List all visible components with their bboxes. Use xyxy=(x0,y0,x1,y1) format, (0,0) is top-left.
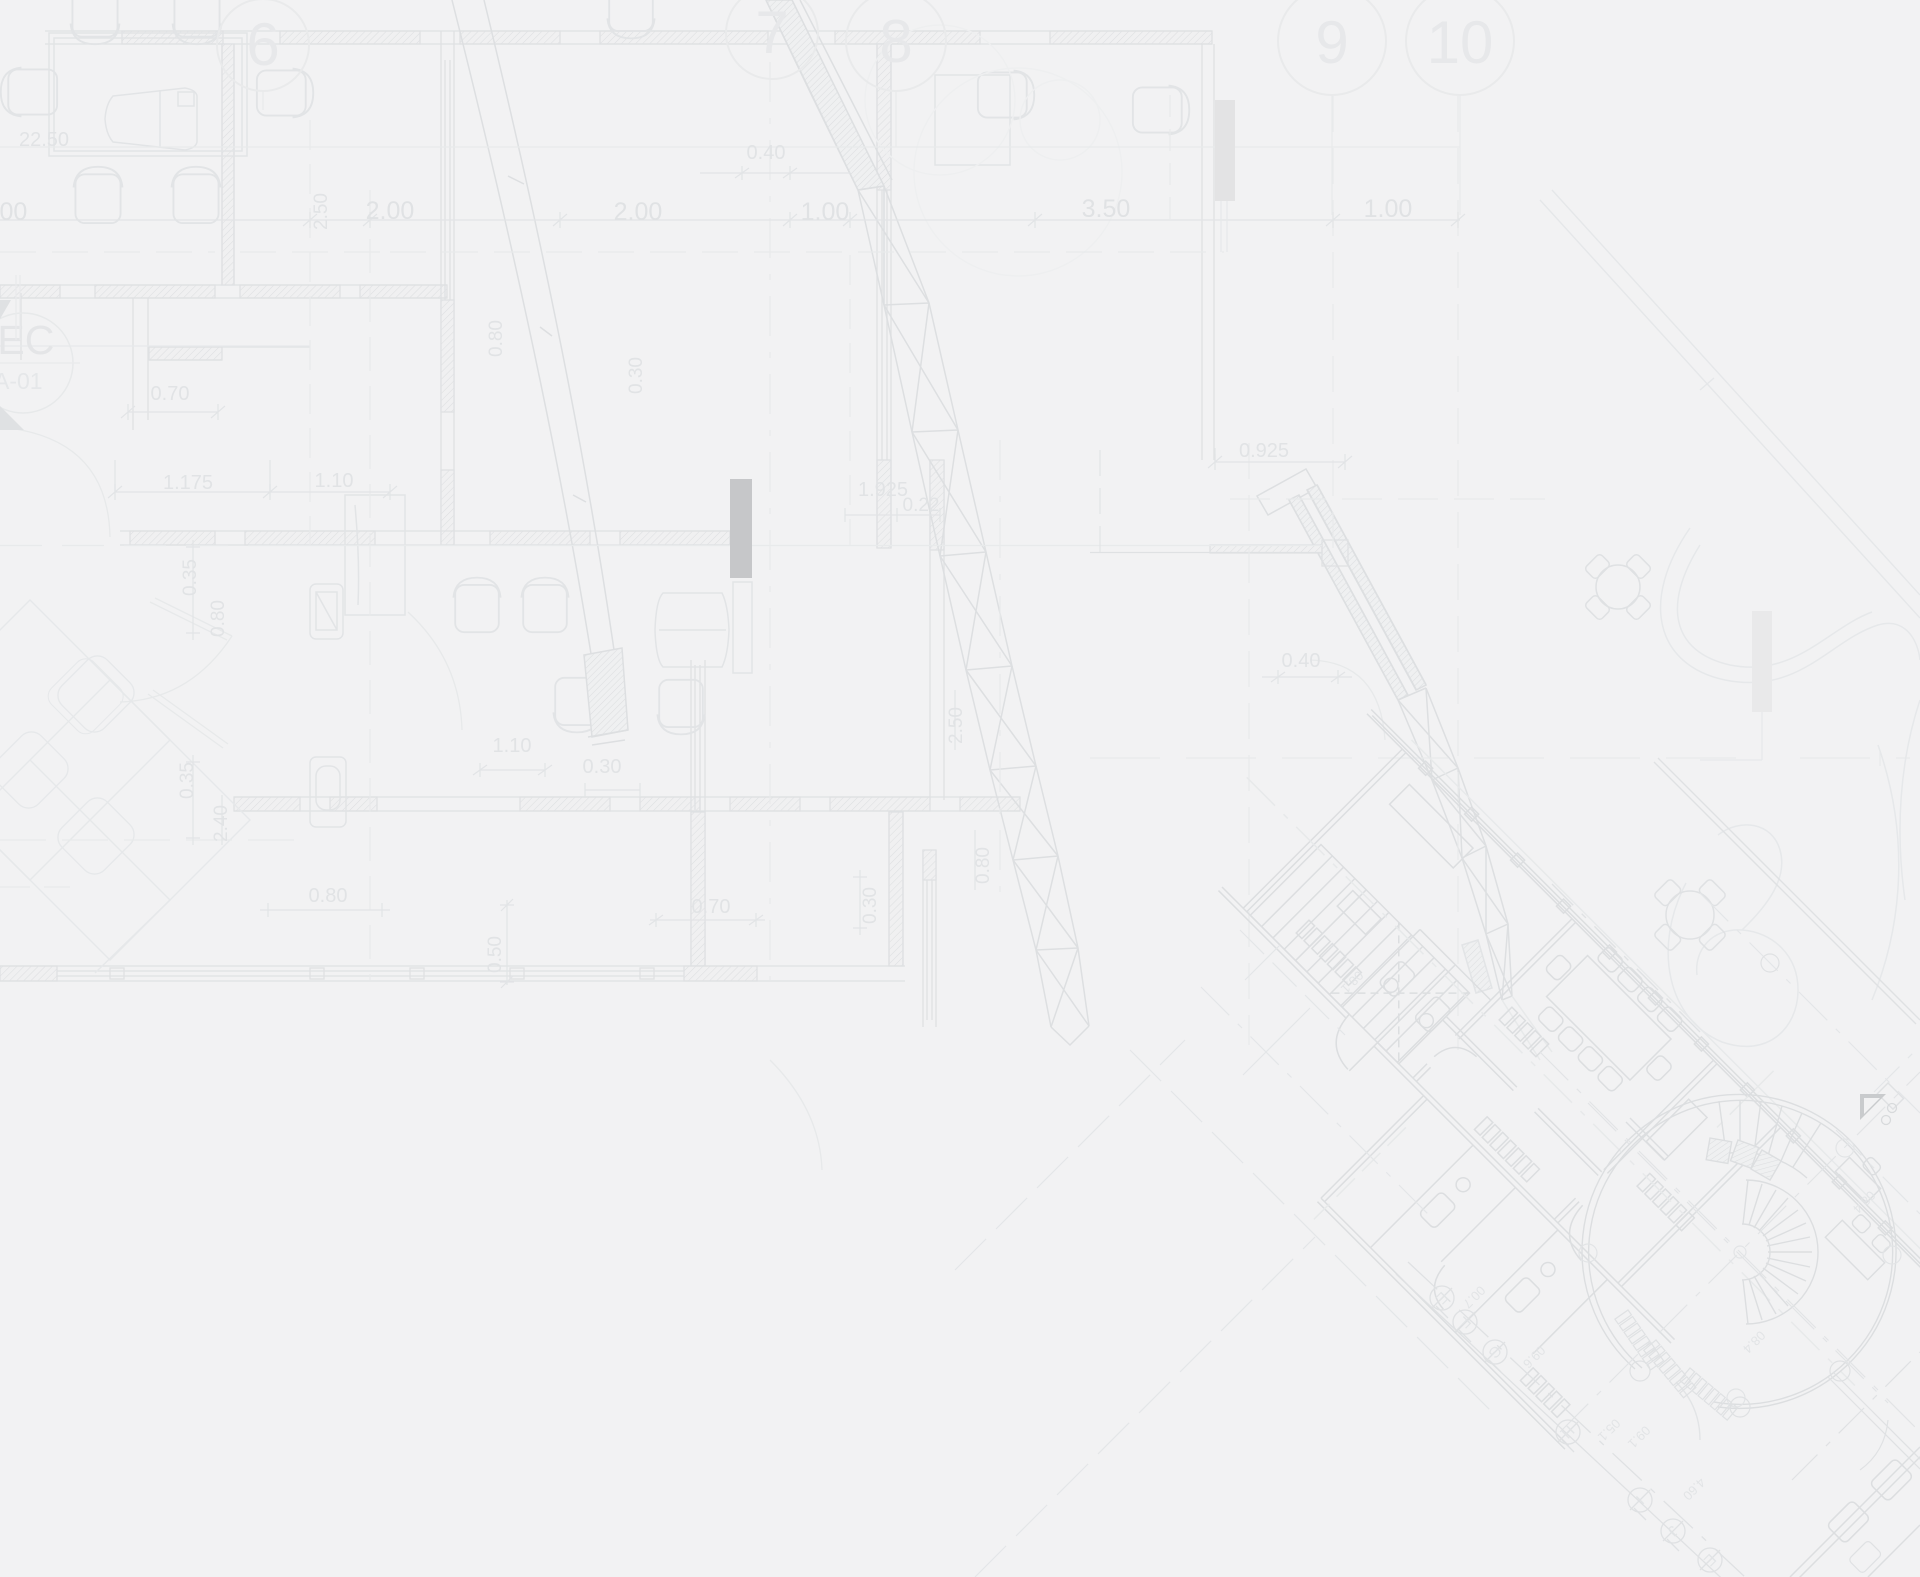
svg-text:0.70: 0.70 xyxy=(151,383,190,405)
svg-text:6: 6 xyxy=(246,11,279,78)
svg-text:0.30: 0.30 xyxy=(626,357,647,394)
svg-text:1.175: 1.175 xyxy=(163,472,213,494)
svg-text:8: 8 xyxy=(879,8,912,75)
svg-text:3.50: 3.50 xyxy=(1082,195,1131,223)
svg-text:2.00: 2.00 xyxy=(366,197,415,225)
svg-text:0.35: 0.35 xyxy=(180,559,201,596)
svg-text:0.22: 0.22 xyxy=(903,495,940,516)
svg-text:0.80: 0.80 xyxy=(973,847,994,884)
svg-text:1.10: 1.10 xyxy=(315,470,354,492)
svg-text:0.80: 0.80 xyxy=(486,320,507,357)
svg-text:7: 7 xyxy=(755,0,788,66)
svg-text:0.30: 0.30 xyxy=(860,887,881,924)
svg-text:2.40: 2.40 xyxy=(211,805,232,842)
svg-text:1.10: 1.10 xyxy=(493,735,532,757)
svg-text:1.00: 1.00 xyxy=(801,198,850,226)
svg-text:1.00: 1.00 xyxy=(1364,195,1413,223)
svg-text:0.30: 0.30 xyxy=(583,756,622,778)
svg-text:10: 10 xyxy=(1427,9,1494,76)
svg-text:4.00: 4.00 xyxy=(0,198,27,226)
svg-text:0.40: 0.40 xyxy=(747,142,786,164)
svg-text:0.40: 0.40 xyxy=(1282,650,1321,672)
svg-text:A-01: A-01 xyxy=(0,368,43,394)
svg-text:0.50: 0.50 xyxy=(485,936,506,973)
svg-text:2.50: 2.50 xyxy=(946,707,967,744)
svg-text:0.80: 0.80 xyxy=(309,885,348,907)
svg-text:9: 9 xyxy=(1315,9,1348,76)
svg-text:2.00: 2.00 xyxy=(614,198,663,226)
svg-text:0.35: 0.35 xyxy=(177,762,198,799)
svg-text:0.70: 0.70 xyxy=(692,896,731,918)
svg-text:22.50: 22.50 xyxy=(19,129,69,151)
svg-text:2.50: 2.50 xyxy=(311,193,332,230)
svg-text:SEC: SEC xyxy=(0,317,54,363)
svg-text:1.925: 1.925 xyxy=(858,479,908,501)
svg-text:0.80: 0.80 xyxy=(208,600,229,637)
svg-text:0.925: 0.925 xyxy=(1239,440,1289,462)
